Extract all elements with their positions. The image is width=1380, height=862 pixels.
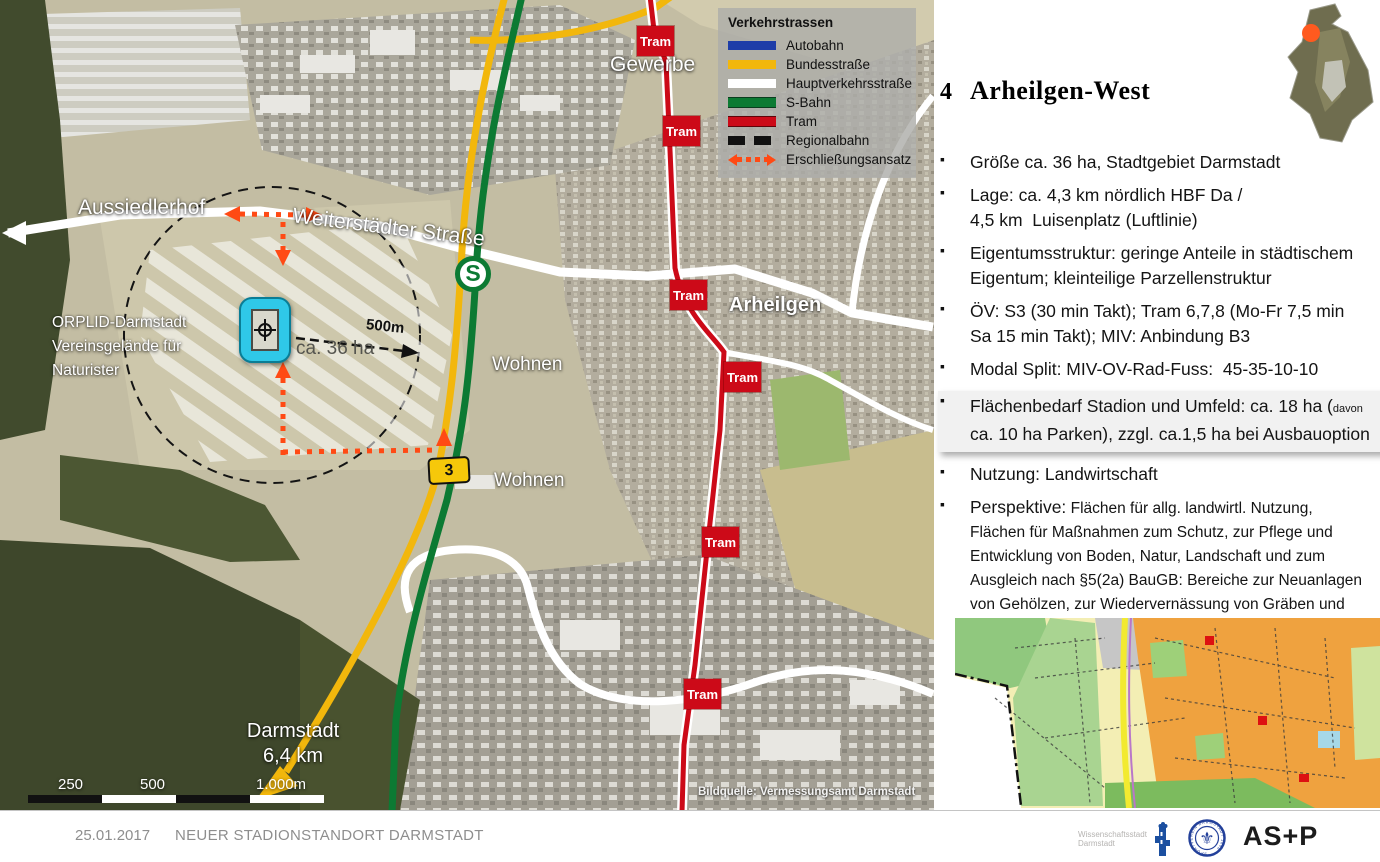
- label-wohnen-sued: Wohnen: [494, 470, 564, 492]
- legend-item-regionalbahn: Regionalbahn: [728, 131, 906, 150]
- image-source-note: Bildquelle: Vermessungsamt Darmstadt: [698, 786, 915, 798]
- label-aussiedlerhof: Aussiedlerhof: [78, 196, 205, 220]
- label-area-36ha: ca. 36 ha: [296, 338, 374, 360]
- bullet-eigentumsstruktur: Eigentumsstruktur: geringe Anteile in st…: [938, 241, 1378, 291]
- legend-item-hauptverkehrsstrasse: Hauptverkehrsstraße: [728, 74, 906, 93]
- tram-stop-marker: Tram: [670, 280, 707, 310]
- flaechenbedarf-line2: ca. 10 ha Parken), zzgl. ca.1,5 ha bei A…: [970, 422, 1380, 447]
- label-darmstadt-distance: 6,4 km: [238, 745, 348, 768]
- flaechenbedarf-text: Flächenbedarf Stadion und Umfeld: ca. 18…: [970, 396, 1333, 416]
- b3-road-badge: 3: [427, 456, 470, 485]
- aerial-map: Verkehrstrassen Autobahn Bundesstraße Ha…: [0, 0, 934, 810]
- wissenschaftsstadt-tower-icon: [1152, 820, 1172, 856]
- legend-item-bundesstrasse: Bundesstraße: [728, 55, 906, 74]
- perspektive-line1: Flächen für allg. landwirtl. Nutzung,: [1071, 500, 1313, 517]
- asp-logo: AS+P: [1243, 821, 1318, 852]
- tram-stop-marker: Tram: [637, 26, 674, 56]
- detail-panel: 4Arheilgen-West Größe ca. 36 ha, Stadtge…: [934, 0, 1380, 810]
- autobahn-line-swatch: [728, 41, 776, 50]
- tram-stop-marker: Tram: [663, 116, 700, 146]
- map-legend: Verkehrstrassen Autobahn Bundesstraße Ha…: [718, 8, 916, 178]
- footer-date: 25.01.2017: [75, 827, 150, 844]
- map-scale-bar: 250 500 1.000m: [28, 776, 324, 804]
- fact-list: Größe ca. 36 ha, Stadtgebiet Darmstadt L…: [938, 150, 1378, 649]
- label-orplid-line2: Vereinsgelände für: [52, 338, 181, 356]
- slide: Verkehrstrassen Autobahn Bundesstraße Ha…: [0, 0, 1380, 862]
- flaechenbedarf-davon: davon: [1333, 403, 1363, 415]
- tram-stop-marker: Tram: [724, 362, 761, 392]
- perspektive-lead: Perspektive:: [970, 497, 1066, 517]
- label-darmstadt: Darmstadt: [238, 720, 348, 743]
- site-location-dot: [1302, 24, 1320, 42]
- label-wohnen-nord: Wohnen: [492, 354, 562, 376]
- crosshair-icon: [254, 319, 276, 341]
- tram-line-swatch: [728, 117, 776, 126]
- legend-item-sbahn: S-Bahn: [728, 93, 906, 112]
- bullet-groesse: Größe ca. 36 ha, Stadtgebiet Darmstadt: [938, 150, 1378, 175]
- label-orplid-line3: Naturister: [52, 362, 119, 380]
- page-title: 4Arheilgen-West: [940, 76, 1150, 106]
- label-orplid-line1: ORPLID-Darmstadt: [52, 314, 186, 332]
- site-name: Arheilgen-West: [970, 76, 1150, 105]
- erschliessungsansatz-arrow-swatch: [728, 153, 776, 166]
- legend-item-erschliessungsansatz: Erschließungsansatz: [728, 150, 906, 169]
- site-number: 4: [940, 79, 952, 105]
- footer-partner-text: Wissenschaftsstadt Darmstadt: [1078, 830, 1147, 848]
- bullet-nutzung: Nutzung: Landwirtschaft: [938, 462, 1378, 487]
- city-inset-map: [1280, 2, 1380, 146]
- footer-presentation-title: NEUER STADIONSTANDORT DARMSTADT: [175, 827, 484, 844]
- scale-bar-segments: [28, 795, 324, 803]
- stadium-pictogram: [251, 309, 279, 351]
- scale-tick-250: 250: [58, 776, 83, 793]
- sbahn-line-swatch: [728, 98, 776, 107]
- legend-item-autobahn: Autobahn: [728, 36, 906, 55]
- regionalbahn-line-swatch: [728, 136, 776, 145]
- bullet-modal-split: Modal Split: MIV-OV-Rad-Fuss: 45-35-10-1…: [938, 357, 1378, 382]
- label-gewerbe: Gewerbe: [610, 53, 695, 77]
- footer: 25.01.2017 NEUER STADIONSTANDORT DARMSTA…: [0, 810, 1380, 862]
- sbahn-station-icon: S: [455, 256, 491, 292]
- scale-tick-500: 500: [140, 776, 165, 793]
- zoning-plan-map: [955, 618, 1380, 808]
- sv-darmstadt-crest-icon: SPORTVEREIN DARMSTADT 1898 ⚜: [1188, 819, 1226, 857]
- bullet-oev: ÖV: S3 (30 min Takt); Tram 6,7,8 (Mo-Fr …: [938, 299, 1378, 349]
- bullet-flaechenbedarf-highlighted: Flächenbedarf Stadion und Umfeld: ca. 18…: [938, 391, 1380, 452]
- legend-title: Verkehrstrassen: [728, 15, 906, 30]
- bundesstrasse-line-swatch: [728, 60, 776, 69]
- legend-item-tram: Tram: [728, 112, 906, 131]
- bullet-lage: Lage: ca. 4,3 km nördlich HBF Da / 4,5 k…: [938, 183, 1378, 233]
- tram-stop-marker: Tram: [684, 679, 721, 709]
- stadium-site-marker: [239, 297, 291, 363]
- fleur-de-lis-icon: ⚜: [1199, 829, 1214, 848]
- label-arheilgen: Arheilgen: [729, 294, 821, 317]
- scale-tick-1000m: 1.000m: [256, 776, 306, 793]
- hauptverkehrsstrasse-line-swatch: [728, 79, 776, 88]
- tram-stop-marker: Tram: [702, 527, 739, 557]
